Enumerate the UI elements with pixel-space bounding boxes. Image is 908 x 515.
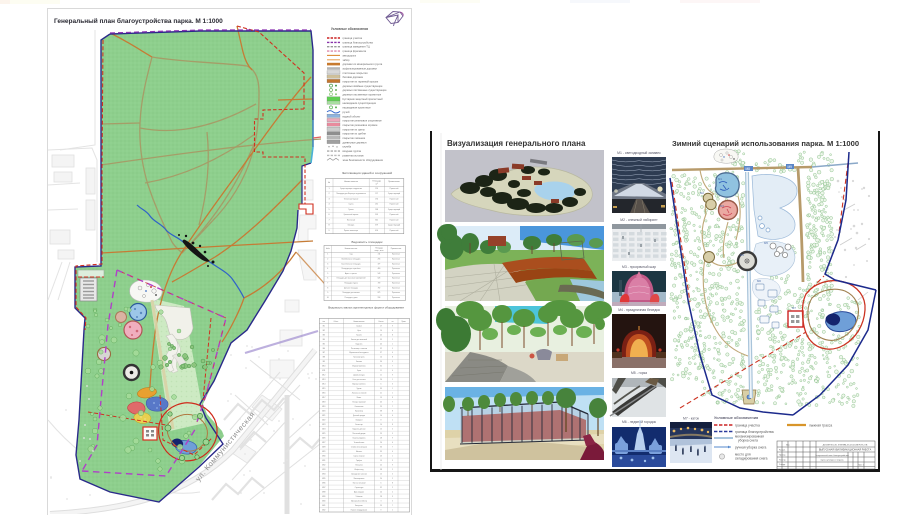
svg-text:416: 416 (375, 230, 378, 232)
svg-text:Проектная: Проектная (392, 278, 400, 280)
svg-text:Ведомость площадок: Ведомость площадок (352, 240, 384, 244)
svg-text:М22: М22 (322, 420, 325, 422)
svg-text:40: 40 (380, 334, 382, 336)
svg-text:Существующие сооружения: Существующие сооружения (340, 188, 362, 190)
svg-text:М37: М37 (322, 487, 325, 489)
svg-text:Ограждение газонное: Ограждение газонное (351, 474, 367, 476)
svg-text:Прим.: Прим. (401, 321, 406, 323)
svg-text:1: 1 (392, 343, 393, 345)
svg-text:складирования снега: складирования снега (735, 457, 768, 461)
svg-text:10: 10 (380, 424, 382, 426)
svg-text:9: 9 (381, 509, 382, 511)
svg-text:4: 4 (392, 451, 393, 453)
svg-text:М9: М9 (788, 165, 793, 169)
svg-text:шт: шт (392, 321, 394, 323)
svg-text:2: 2 (392, 339, 393, 341)
svg-text:1: 1 (392, 393, 393, 395)
svg-text:29: 29 (380, 406, 382, 408)
svg-text:9: 9 (327, 292, 328, 294)
svg-text:6: 6 (381, 483, 382, 485)
svg-text:10: 10 (380, 330, 382, 332)
svg-text:3: 3 (327, 263, 328, 265)
svg-text:Воркаут комплекс: Воркаут комплекс (352, 384, 365, 386)
svg-text:М39: М39 (322, 496, 325, 498)
svg-text:4: 4 (327, 268, 328, 270)
svg-text:Примечание: Примечание (388, 181, 400, 183)
svg-text:39: 39 (380, 339, 382, 341)
svg-text:40: 40 (380, 343, 382, 345)
svg-text:Велопарковка: Велопарковка (354, 478, 365, 480)
svg-text:М5: М5 (323, 343, 325, 345)
svg-text:2: 2 (392, 487, 393, 489)
svg-text:Ведомость малых архитектурных: Ведомость малых архитектурных форм и обо… (328, 306, 404, 310)
svg-text:Сцена сборная: Сцена сборная (353, 456, 364, 458)
svg-text:покрытие из щебня: покрытие из щебня (343, 132, 367, 136)
svg-text:7: 7 (392, 505, 393, 507)
svg-text:Песочница с навесом: Песочница с навесом (351, 348, 367, 350)
svg-text:2: 2 (392, 478, 393, 480)
svg-text:5: 5 (392, 500, 393, 502)
svg-text:36: 36 (380, 361, 382, 363)
svg-text:ручная уборка снега: ручная уборка снега (735, 446, 766, 450)
svg-text:32: 32 (380, 348, 382, 350)
svg-text:Площадка для пикника: Площадка для пикника (342, 292, 359, 294)
svg-text:М13: М13 (322, 379, 325, 381)
svg-text:Домик-беседка: Домик-беседка (353, 375, 364, 377)
svg-text:Вазон: Вазон (357, 397, 362, 399)
svg-text:231: 231 (375, 204, 378, 206)
svg-text:38: 38 (380, 411, 382, 413)
svg-text:305: 305 (375, 214, 378, 216)
svg-text:40: 40 (380, 402, 382, 404)
svg-text:М10: М10 (322, 366, 325, 368)
svg-text:19: 19 (380, 460, 382, 462)
svg-text:Провер.: Провер. (779, 455, 786, 457)
svg-text:22: 22 (380, 465, 382, 467)
svg-text:11: 11 (380, 375, 382, 377)
svg-text:покрытие из гариевой крошки: покрытие из гариевой крошки (343, 80, 379, 84)
svg-text:Проектный: Проектный (390, 218, 399, 221)
svg-text:М6: М6 (323, 348, 325, 350)
svg-text:зона безопасности оборудования: зона безопасности оборудования (343, 158, 384, 162)
svg-text:Проектный: Проектный (390, 187, 399, 190)
svg-text:М18: М18 (322, 402, 325, 404)
svg-text:М40: М40 (322, 500, 325, 502)
svg-text:М7: М7 (792, 306, 796, 310)
svg-text:покрытие резиновое игровое: покрытие резиновое игровое (343, 124, 378, 127)
svg-text:Площадка для стритбола: Площадка для стритбола (342, 268, 361, 270)
svg-text:Табличка: Табличка (356, 496, 363, 498)
svg-text:насаждения существующие: насаждения существующие (343, 102, 377, 105)
svg-text:Скамья: Скамья (356, 325, 362, 327)
svg-text:М4: М4 (323, 339, 325, 341)
svg-text:Сцена: Сцена (349, 204, 354, 206)
svg-text:покрытие газонное: покрытие газонное (343, 137, 366, 140)
svg-text:Трибуна: Трибуна (356, 460, 362, 462)
svg-text:Проектная: Проектная (392, 297, 400, 299)
svg-text:24: 24 (380, 491, 382, 493)
svg-text:709: 709 (378, 283, 381, 285)
svg-text:М25: М25 (322, 433, 325, 435)
svg-text:Наименование: Наименование (344, 181, 359, 183)
svg-text:6: 6 (392, 330, 393, 332)
svg-text:1: 1 (327, 254, 328, 256)
svg-text:10: 10 (380, 415, 382, 417)
svg-text:М21: М21 (322, 415, 325, 417)
svg-text:5: 5 (392, 433, 393, 435)
svg-text:8: 8 (392, 334, 393, 336)
svg-text:М7: М7 (323, 352, 325, 354)
svg-text:1: 1 (392, 456, 393, 458)
svg-text:342: 342 (375, 219, 378, 221)
svg-text:Утверд.: Утверд. (779, 464, 786, 466)
svg-text:М2: М2 (700, 191, 704, 195)
svg-text:М16: М16 (322, 393, 325, 395)
svg-text:Фонтанчик: Фонтанчик (347, 218, 356, 221)
svg-text:Шезлонг: Шезлонг (356, 451, 363, 453)
svg-text:29: 29 (380, 505, 382, 507)
svg-text:8: 8 (327, 287, 328, 289)
svg-text:М3: М3 (720, 204, 724, 208)
svg-text:Прокат инвентаря: Прокат инвентаря (344, 230, 358, 232)
svg-text:792: 792 (378, 287, 381, 289)
svg-text:М2 - снежный лабиринт: М2 - снежный лабиринт (620, 218, 658, 222)
svg-text:14: 14 (380, 357, 382, 359)
svg-text:17: 17 (380, 325, 382, 327)
svg-text:1: 1 (392, 388, 393, 390)
svg-text:разметка истоков: разметка истоков (343, 154, 365, 157)
svg-text:15: 15 (380, 429, 382, 431)
svg-text:3: 3 (381, 500, 382, 502)
svg-text:37: 37 (380, 352, 382, 354)
svg-text:Балансир: Балансир (355, 424, 362, 426)
svg-text:28: 28 (380, 438, 382, 440)
svg-text:плиточные покрытия: плиточные покрытия (343, 72, 369, 75)
svg-text:32: 32 (380, 487, 382, 489)
svg-text:8: 8 (381, 420, 382, 422)
svg-text:М17: М17 (322, 397, 325, 399)
svg-text:6: 6 (392, 415, 393, 417)
svg-text:ручей: ручей (343, 110, 351, 114)
svg-text:6: 6 (327, 278, 328, 280)
svg-text:Существующий: Существующий (388, 224, 400, 227)
svg-text:8: 8 (392, 411, 393, 413)
svg-text:ВЫПУСКНАЯ КВАЛИФИКАЦИОННАЯ РАБ: ВЫПУСКНАЯ КВАЛИФИКАЦИОННАЯ РАБОТА (819, 449, 872, 452)
svg-text:дорожки из минерального грунта: дорожки из минерального грунта (343, 63, 383, 66)
svg-text:М42: М42 (322, 509, 325, 511)
svg-text:граница участка: граница участка (735, 424, 760, 428)
svg-text:М31: М31 (322, 460, 325, 462)
svg-text:М4 - праздничная беседка: М4 - праздничная беседка (618, 308, 660, 312)
svg-text:Проектный: Проектный (390, 203, 399, 206)
svg-text:Генеральный план благоустройст: Генеральный план благоустройства парка. … (54, 17, 223, 25)
svg-text:23: 23 (380, 456, 382, 458)
svg-text:8: 8 (392, 357, 393, 359)
svg-text:граница благоустройства: граница благоустройства (735, 430, 774, 434)
svg-text:М34: М34 (322, 474, 325, 476)
svg-text:М4: М4 (740, 253, 744, 257)
svg-text:М28: М28 (322, 447, 325, 449)
svg-text:№№: №№ (326, 247, 330, 250)
svg-text:М3: М3 (323, 334, 325, 336)
svg-text:М32: М32 (322, 465, 325, 467)
svg-text:379: 379 (375, 225, 378, 227)
svg-text:Н.контр.: Н.контр. (779, 460, 786, 462)
svg-text:Площадка отдыха: Площадка отдыха (344, 283, 358, 285)
svg-text:клумба: клумба (343, 145, 352, 149)
svg-text:Проектная: Проектная (392, 263, 400, 265)
svg-text:36: 36 (380, 447, 382, 449)
svg-text:211: 211 (378, 254, 381, 256)
svg-text:Площадка у реки: Площадка у реки (345, 297, 358, 299)
svg-text:26: 26 (380, 442, 382, 444)
svg-text:Горка: Горка (357, 370, 361, 372)
svg-text:Прочее оборудование: Прочее оборудование (351, 509, 368, 511)
svg-text:Прожектор: Прожектор (355, 411, 363, 413)
svg-text:Детская площадка: Детская площадка (344, 287, 358, 289)
svg-text:Условные обозначения: Условные обозначения (714, 416, 758, 420)
svg-text:водный объект: водный объект (343, 114, 362, 118)
svg-text:М38: М38 (322, 491, 325, 493)
svg-text:М36: М36 (322, 483, 325, 485)
svg-text:Площадь: Площадь (372, 181, 381, 183)
svg-text:Качалка-пружина: Качалка-пружина (353, 438, 366, 440)
svg-text:М9: М9 (323, 361, 325, 363)
svg-text:деревья хвойные существующие: деревья хвойные существующие (343, 84, 383, 88)
svg-text:7: 7 (327, 283, 328, 285)
svg-text:Проектный: Проектный (390, 198, 399, 201)
svg-text:1: 1 (392, 509, 393, 511)
svg-text:9: 9 (392, 325, 393, 327)
svg-text:забор: забор (343, 58, 351, 62)
svg-text:М6: М6 (757, 279, 761, 283)
svg-text:Туалет: Туалет (348, 209, 354, 211)
svg-text:граница фрагмента: граница фрагмента (343, 49, 367, 53)
svg-text:120: 120 (375, 188, 378, 190)
svg-text:39: 39 (380, 388, 382, 390)
svg-text:Беседка: Беседка (348, 225, 355, 227)
svg-text:875: 875 (378, 292, 381, 294)
svg-text:М3 - прозрачный шар: М3 - прозрачный шар (622, 265, 656, 269)
svg-text:Баскетбольная площадка: Баскетбольная площадка (341, 263, 360, 265)
svg-text:насаждения проектные: насаждения проектные (343, 107, 372, 110)
svg-text:М7 - каток: М7 - каток (683, 417, 699, 421)
svg-text:покр., кв.м: покр., кв.м (375, 250, 384, 252)
svg-text:лыжная трасса: лыжная трасса (809, 424, 832, 428)
svg-text:26: 26 (380, 379, 382, 381)
svg-text:граница благоустройства: граница благоустройства (343, 40, 374, 44)
svg-text:парка культуры и отдыха: парка культуры и отдыха (820, 460, 844, 462)
svg-text:268: 268 (375, 209, 378, 211)
svg-text:157: 157 (375, 193, 378, 195)
svg-text:М19: М19 (322, 406, 325, 408)
svg-text:9: 9 (392, 465, 393, 467)
svg-text:асфальтированные дорожки: асфальтированные дорожки (343, 67, 378, 71)
svg-text:Проектная: Проектная (392, 273, 400, 275)
svg-text:Кустарник защитный прелестный: Кустарник защитный прелестный (343, 97, 384, 101)
svg-text:М14: М14 (322, 384, 325, 386)
svg-text:М24: М24 (322, 429, 325, 431)
svg-text:Сад: Сад (350, 254, 353, 256)
svg-text:Карусель детская: Карусель детская (352, 429, 365, 431)
svg-text:М1: М1 (323, 325, 325, 327)
svg-text:2: 2 (392, 491, 393, 493)
svg-text:М8: М8 (746, 167, 751, 171)
svg-text:Кол-во: Кол-во (379, 321, 384, 323)
svg-text:3: 3 (392, 460, 393, 462)
svg-text:Турник: Турник (356, 388, 361, 390)
svg-text:Качели: Качели (356, 334, 361, 336)
svg-text:460: 460 (378, 268, 381, 270)
svg-text:5: 5 (327, 273, 328, 275)
svg-text:2: 2 (327, 259, 328, 261)
svg-text:покрытие резиновое спортивное: покрытие резиновое спортивное (343, 120, 383, 123)
svg-text:покрытие из щепы: покрытие из щепы (343, 128, 365, 131)
svg-text:М11: М11 (322, 370, 325, 372)
svg-text:беговая дорожка: беговая дорожка (343, 75, 364, 79)
svg-text:9: 9 (392, 361, 393, 363)
svg-text:21: 21 (380, 393, 382, 395)
svg-text:М5: М5 (764, 241, 768, 245)
svg-text:377: 377 (378, 263, 381, 265)
svg-text:1: 1 (392, 420, 393, 422)
svg-text:М35: М35 (322, 478, 325, 480)
svg-text:29: 29 (380, 433, 382, 435)
svg-text:Наименование: Наименование (353, 321, 364, 323)
svg-text:8: 8 (392, 424, 393, 426)
svg-text:6: 6 (392, 442, 393, 444)
svg-text:Проектная: Проектная (392, 259, 400, 261)
svg-text:Существующий: Существующий (388, 192, 400, 195)
svg-text:Проектная: Проектная (392, 287, 400, 289)
svg-text:Проектная: Проектная (392, 283, 400, 285)
svg-text:32: 32 (380, 366, 382, 368)
svg-text:Проектная: Проектная (392, 268, 400, 270)
svg-text:граница участка: граница участка (343, 37, 363, 40)
svg-text:Обозн.: Обозн. (333, 321, 339, 323)
svg-text:М8: М8 (323, 357, 325, 359)
svg-text:древесные деревья: древесные деревья (343, 141, 368, 144)
svg-text:Проектная: Проектная (392, 292, 400, 294)
svg-text:Скульптура: Скульптура (355, 487, 364, 489)
svg-text:М30: М30 (322, 456, 325, 458)
svg-text:9: 9 (392, 375, 393, 377)
svg-text:м²: м² (376, 183, 378, 186)
svg-text:Качалка: Качалка (356, 361, 362, 363)
svg-text:958: 958 (378, 297, 381, 299)
svg-text:Проектный: Проектный (390, 213, 399, 216)
svg-text:М5 - горка: М5 - горка (631, 371, 647, 375)
svg-text:543: 543 (378, 273, 381, 275)
svg-text:626: 626 (378, 278, 381, 280)
svg-text:3: 3 (392, 384, 393, 386)
svg-text:деревья лиственные проектные: деревья лиственные проектные (343, 94, 382, 97)
svg-text:194: 194 (375, 199, 378, 201)
svg-text:М2: М2 (323, 330, 325, 332)
svg-text:Визуализация генерального план: Визуализация генерального плана (447, 139, 586, 148)
svg-text:4: 4 (392, 352, 393, 354)
svg-text:28: 28 (380, 496, 382, 498)
svg-text:автодорога: автодорога (343, 54, 357, 57)
svg-text:1: 1 (392, 379, 393, 381)
svg-text:М26: М26 (322, 438, 325, 440)
svg-text:М1: М1 (718, 177, 722, 181)
svg-text:М27: М27 (322, 442, 325, 444)
svg-text:М33: М33 (322, 469, 325, 471)
svg-text:М29: М29 (322, 451, 325, 453)
svg-text:М23: М23 (322, 424, 325, 426)
svg-text:7: 7 (392, 447, 393, 449)
svg-text:Существующий: Существующий (388, 208, 400, 211)
svg-text:граница заведения ТЦ: граница заведения ТЦ (343, 45, 370, 49)
svg-text:Зимний сценарий использования: Зимний сценарий использования парка. М 1… (672, 139, 859, 148)
svg-text:М41: М41 (322, 505, 325, 507)
svg-text:М12: М12 (322, 375, 325, 377)
svg-text:7: 7 (392, 402, 393, 404)
svg-text:Проектный: Проектный (390, 229, 399, 232)
svg-text:ДП.ВКР.ХХ-35. ФИПИМ-35.03.04.В: ДП.ВКР.ХХ-35. ФИПИМ-35.03.04.ВКР.ХХ-ОВ (823, 444, 868, 447)
svg-text:М6 - ледяной городок: М6 - ледяной городок (622, 420, 657, 424)
svg-text:10: 10 (327, 297, 329, 299)
svg-text:7: 7 (392, 366, 393, 368)
svg-text:8: 8 (392, 483, 393, 485)
svg-text:М20: М20 (322, 411, 325, 413)
svg-text:5: 5 (392, 474, 393, 476)
svg-text:9: 9 (392, 438, 393, 440)
svg-text:М1 - светодиодный занавес: М1 - светодиодный занавес (617, 151, 661, 155)
svg-text:М15: М15 (322, 388, 325, 390)
svg-text:Наименование: Наименование (345, 248, 357, 250)
svg-text:5: 5 (392, 348, 393, 350)
svg-text:Тепличный парник: Тепличный парник (344, 198, 359, 201)
svg-text:20: 20 (380, 478, 382, 480)
svg-text:Примечание: Примечание (391, 248, 401, 250)
svg-text:Изм.: Изм. (786, 445, 790, 447)
svg-text:Экспликация зданий и сооружени: Экспликация зданий и сооружений (342, 171, 393, 175)
svg-text:Проектная: Проектная (392, 254, 400, 256)
svg-text:Площадки для Воркаута и джампи: Площадки для Воркаута и джампинга (336, 193, 366, 195)
svg-text:38: 38 (380, 469, 382, 471)
svg-text:19: 19 (380, 397, 382, 399)
svg-text:15: 15 (380, 474, 382, 476)
svg-text:2: 2 (392, 469, 393, 471)
svg-text:11: 11 (380, 370, 382, 372)
svg-text:Стол для тенниса: Стол для тенниса (352, 379, 365, 381)
svg-text:Лабиринт: Лабиринт (355, 420, 362, 422)
svg-text:Биотуалет: Биотуалет (355, 505, 363, 507)
svg-text:39: 39 (380, 451, 382, 453)
svg-text:Светильник: Светильник (355, 406, 364, 408)
svg-text:входная группа: входная группа (343, 150, 362, 153)
svg-text:уборка снега: уборка снега (738, 439, 758, 443)
svg-text:Лист 2: Лист 2 (858, 465, 864, 467)
svg-text:Разраб.: Разраб. (779, 450, 786, 452)
svg-text:4: 4 (392, 370, 393, 372)
svg-text:Цветочный парник: Цветочный парник (344, 213, 359, 216)
svg-text:8: 8 (392, 397, 393, 399)
svg-text:Карусель: Карусель (356, 343, 363, 345)
svg-text:Генеральный план благоустройст: Генеральный план благоустройства (815, 454, 849, 457)
svg-text:6: 6 (381, 384, 382, 386)
svg-text:Тренажер улич.: Тренажер улич. (353, 357, 365, 359)
svg-text:294: 294 (378, 259, 381, 261)
svg-text:7: 7 (392, 406, 393, 408)
svg-text:3: 3 (392, 496, 393, 498)
svg-text:деревья лиственные существующи: деревья лиственные существующие (343, 89, 388, 92)
svg-text:5: 5 (392, 429, 393, 431)
svg-text:Урна: Урна (357, 330, 361, 332)
svg-text:Условные обозначения: Условные обозначения (331, 27, 368, 31)
